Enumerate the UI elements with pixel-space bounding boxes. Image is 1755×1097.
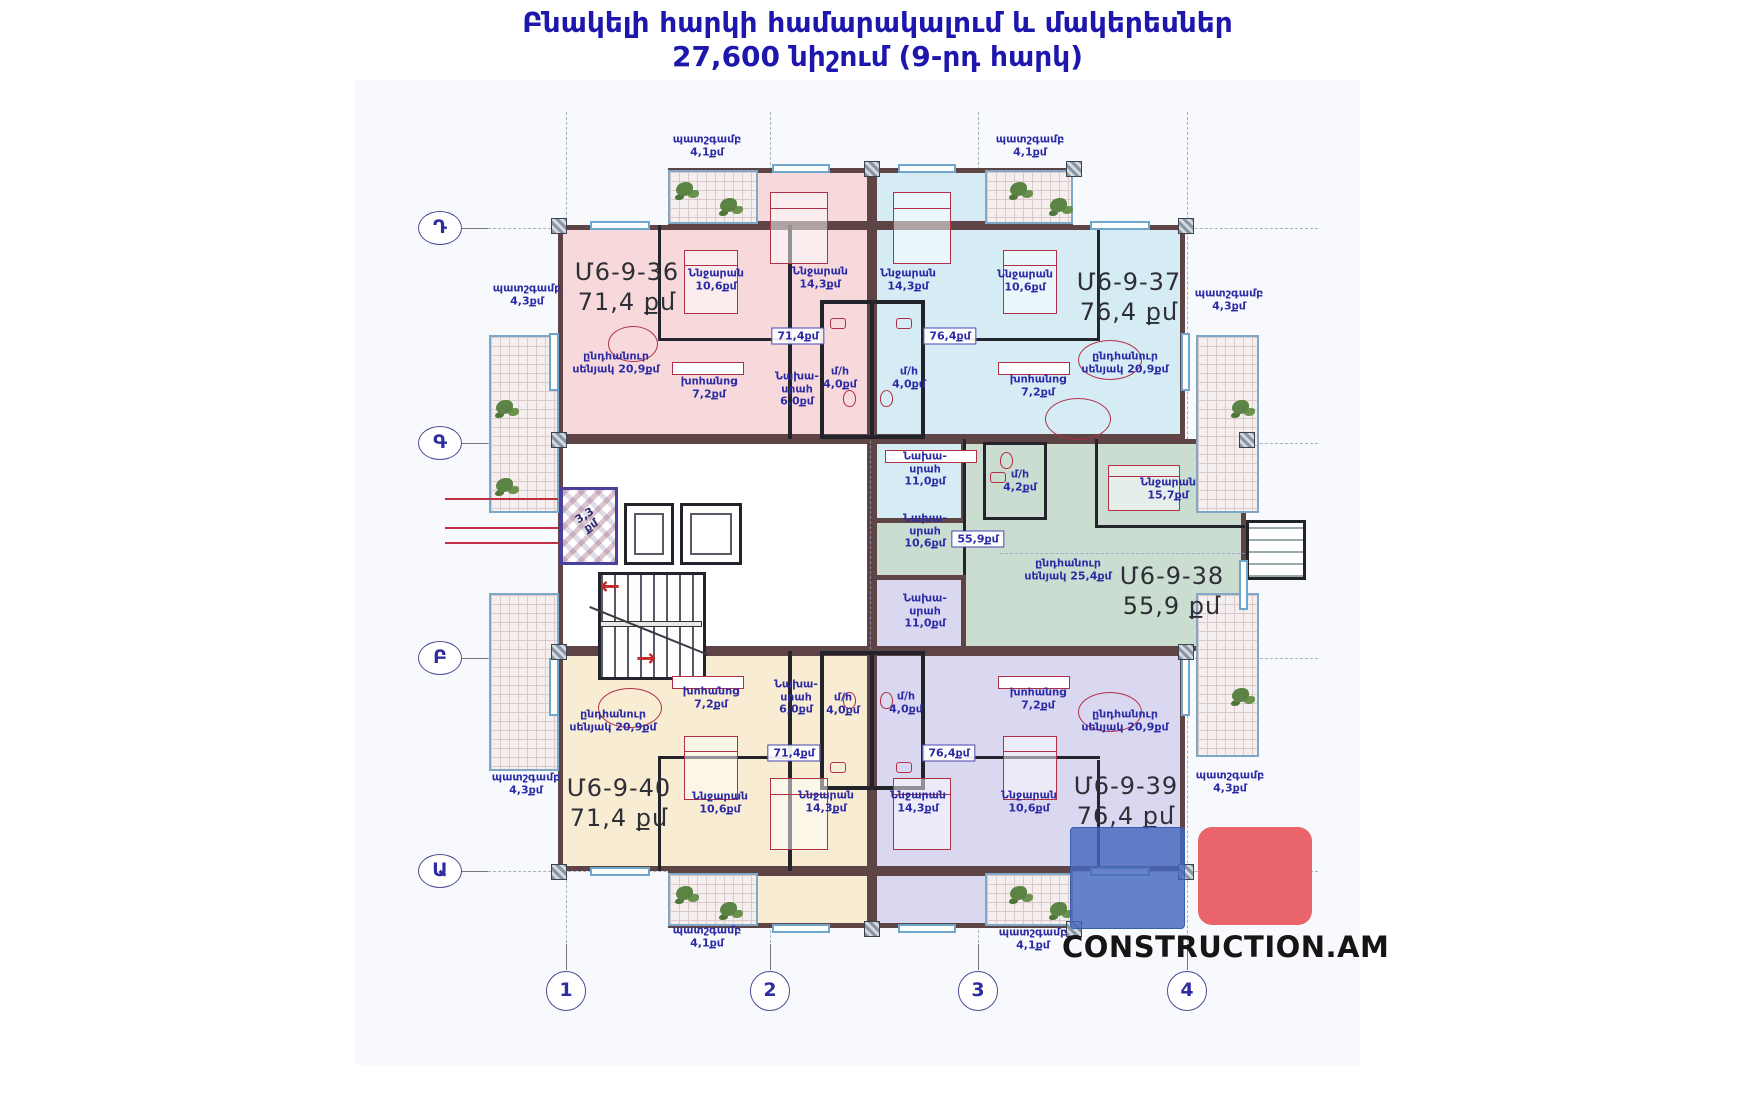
room-label: Ննջարան 10,6քմ [999, 790, 1059, 815]
elevator-1-cab [634, 513, 664, 555]
wall-corner-pad-7 [1178, 644, 1194, 660]
wall-corner-pad-5 [1239, 432, 1255, 448]
axis-row-letter: Դ [433, 216, 447, 238]
toilet-icon [1000, 452, 1013, 469]
balcony-area-1 [985, 170, 1073, 224]
room-name: մ/հ [831, 365, 849, 378]
axis-col-leader [770, 944, 771, 970]
apartment-id: Մ6-9-37 [1077, 267, 1181, 297]
axis-col-marker: 4 [1167, 971, 1207, 1011]
room-area: 11,0քմ [904, 474, 945, 487]
balcony-name: պատշգամբ [492, 771, 560, 784]
partition-wall-4 [965, 338, 1100, 341]
axis-row-marker: Ա [418, 854, 462, 888]
room-name: Ննջարան [1140, 476, 1196, 489]
apartment-area-badge-value: 55,9քմ [957, 533, 998, 546]
window-5 [1090, 221, 1150, 230]
room-name: Ննջարան [692, 790, 748, 803]
wall-corner-pad-0 [551, 218, 567, 234]
room-area: 4,0քմ [826, 703, 860, 716]
room-label: խոհանոց 7,2քմ [1007, 374, 1069, 399]
apartment-area-badge: 71,4քմ [771, 328, 824, 345]
room-area: 10,6քմ [1008, 801, 1049, 814]
elevator-1 [624, 503, 674, 565]
apartment-area-badge-value: 76,4քմ [928, 747, 969, 760]
wall-corner-pad-2 [1066, 161, 1082, 177]
axis-row-marker: Գ [418, 426, 462, 460]
axis-row-leader [462, 228, 488, 229]
room-area: 14,3քմ [887, 279, 928, 292]
apartment-id: Մ6-9-38 [1120, 561, 1224, 591]
title-line1: Բնակելի հարկի համարակալում և մակերեսներ [0, 6, 1755, 40]
room-area: 15,7քմ [1147, 488, 1188, 501]
window-1 [898, 164, 956, 173]
axis-col-number: 3 [971, 979, 984, 1001]
balcony-label: պատշգամբ 4,3քմ [488, 772, 564, 797]
balcony-name: պատշգամբ [673, 133, 741, 146]
room-name: խոհանոց [683, 685, 740, 698]
balcony-area: 4,3քմ [510, 294, 544, 307]
room-label: Նախա-սրահ 10,6քմ [899, 512, 951, 550]
balcony-label: պատշգամբ 4,1քմ [992, 134, 1068, 159]
partition-wall-7 [1095, 525, 1245, 528]
axis-col-marker: 2 [750, 971, 790, 1011]
wall-corner-pad-8 [864, 921, 880, 937]
room-name: խոհանոց [1010, 373, 1067, 386]
room-area: 6,0քմ [780, 394, 814, 407]
room-name: Ննջարան [792, 265, 848, 278]
apartment-area-badge: 76,4քմ [923, 328, 976, 345]
room-name: Ննջարան [880, 267, 936, 280]
sink-icon [896, 318, 912, 329]
stair-direction-arrow-icon: ← [600, 576, 620, 596]
apartment-id-label: Մ6-9-3855,9 քմ [1120, 561, 1224, 621]
room-label: Նախա-սրահ 6,0քմ [770, 678, 822, 716]
room-area: 20,9քմ [1127, 362, 1168, 375]
balcony-label: պատշգամբ 4,3քմ [1191, 288, 1267, 313]
room-name: Նախա-սրահ [903, 511, 947, 537]
balcony-name: պատշգամբ [673, 924, 741, 937]
dining-table-icon [1045, 398, 1111, 440]
service-box [1246, 520, 1306, 580]
sink-icon [896, 762, 912, 773]
apartment-id-label: Մ6-9-3776,4 քմ [1077, 267, 1181, 327]
apartment-area-badge-value: 76,4քմ [929, 330, 970, 343]
balcony-name: պատշգամբ [996, 133, 1064, 146]
room-area: 7,2քմ [1021, 698, 1055, 711]
apartment-area-badge: 71,4քմ [767, 745, 820, 762]
bathroom-divider-top [870, 300, 874, 439]
toilet-icon [843, 390, 856, 407]
bed-pillow-line [1004, 737, 1056, 752]
room-label: մ/հ 4,0քմ [887, 366, 931, 391]
bed-pillow-line [894, 193, 950, 209]
title-line2: 27,600 նիշում (9-րդ հարկ) [0, 40, 1755, 74]
wall-corner-pad-4 [551, 432, 567, 448]
room-label: Նախա-սրահ 11,0քմ [899, 450, 951, 488]
wall-corner-pad-6 [551, 644, 567, 660]
room-area: 7,2քմ [692, 387, 726, 400]
balcony-area: 4,1քմ [1013, 145, 1047, 158]
room-name: մ/հ [897, 690, 915, 703]
room-area: 10,6քմ [904, 536, 945, 549]
bed-icon [770, 192, 828, 264]
room-area: 10,6քմ [695, 279, 736, 292]
room-area: 14,3քմ [897, 801, 938, 814]
room-name: մ/հ [900, 365, 918, 378]
bathroom-divider-bottom [870, 651, 874, 790]
room-label: խոհանոց 7,2քմ [680, 686, 742, 711]
room-name: Ննջարան [997, 268, 1053, 281]
room-label: Նախա-սրահ 11,0քմ [899, 592, 951, 630]
balcony-area: 4,3քմ [1212, 299, 1246, 312]
room-label: Ննջարան 14,3քմ [790, 266, 850, 291]
axis-col-number: 2 [763, 979, 776, 1001]
room-name: Ննջարան [1001, 789, 1057, 802]
balcony-area-6 [1196, 335, 1259, 513]
room-label: մ/հ 4,0քմ [884, 691, 928, 716]
room-area: 25,4քմ [1070, 569, 1111, 582]
window-0 [772, 164, 830, 173]
apartment-area-badge: 76,4քմ [922, 745, 975, 762]
bed-pillow-line [685, 251, 737, 266]
bed-pillow-line [771, 193, 827, 209]
balcony-area: 4,1քմ [690, 936, 724, 949]
axis-row-marker: Դ [418, 211, 462, 245]
room-label: մ/հ 4,2քմ [998, 469, 1042, 494]
apartment-id: Մ6-9-39 [1074, 771, 1178, 801]
apartment-id-label: Մ6-9-3976,4 քմ [1074, 771, 1178, 831]
room-area: 4,0քմ [889, 702, 923, 715]
room-name: Ննջարան [890, 789, 946, 802]
apartment-total-area: 55,9 քմ [1120, 591, 1224, 621]
room-label: խոհանոց 7,2քմ [1007, 687, 1069, 712]
construction-am-logo-red-rect [1198, 827, 1312, 925]
apartment-total-area: 71,4 քմ [575, 287, 679, 317]
partition-wall-1 [658, 338, 790, 341]
axis-col-marker: 1 [546, 971, 586, 1011]
staircase-rail [600, 621, 702, 627]
window-6 [590, 867, 650, 876]
balcony-label: պատշգամբ 4,1քմ [669, 925, 745, 950]
balcony-label: պատշգամբ 4,3քմ [489, 283, 565, 308]
apartment-total-area: 71,4 քմ [567, 803, 671, 833]
room-area: 10,6քմ [699, 802, 740, 815]
bed-icon [893, 192, 951, 264]
toilet-icon [880, 390, 893, 407]
room-name: Նախա-սրահ [903, 591, 947, 617]
room-area: 20,9քմ [1127, 720, 1168, 733]
room-name: խոհանոց [1010, 686, 1067, 699]
stair-direction-arrow-icon: → [636, 648, 656, 668]
balcony-area: 4,1քմ [690, 145, 724, 158]
elevator-2 [680, 503, 742, 565]
window-12 [1239, 560, 1248, 610]
apartment-area-badge-value: 71,4քմ [773, 747, 814, 760]
room-area: 4,0քմ [823, 377, 857, 390]
sink-icon [830, 762, 846, 773]
room-label: ընդհանուր սենյակ 25,4քմ [1019, 558, 1117, 583]
room-label: Ննջարան 10,6քմ [686, 268, 746, 293]
riser-pipe-0 [445, 498, 558, 500]
balcony-name: պատշգամբ [1196, 769, 1264, 782]
balcony-area: 4,1քմ [1016, 938, 1050, 951]
apartment-area-badge: 55,9քմ [951, 531, 1004, 548]
room-area: 11,0քմ [904, 616, 945, 629]
balcony-name: պատշգամբ [999, 926, 1067, 939]
sink-icon [830, 318, 846, 329]
room-name: Ննջարան [688, 267, 744, 280]
room-label: մ/հ 4,0քմ [818, 366, 862, 391]
window-9 [549, 658, 559, 716]
center-axis-horizontal [1000, 553, 1250, 554]
watermark-text: CONSTRUCTION.AM [1062, 930, 1332, 964]
balcony-label: պատշգամբ 4,1քմ [995, 927, 1071, 952]
axis-col-number: 4 [1180, 979, 1193, 1001]
room-label: Ննջարան 10,6քմ [690, 791, 750, 816]
window-3 [898, 924, 956, 933]
wall-corner-pad-3 [1178, 218, 1194, 234]
axis-col-leader [978, 944, 979, 970]
window-4 [590, 221, 650, 230]
axis-row-leader [462, 658, 488, 659]
apartment-total-area: 76,4 քմ [1077, 297, 1181, 327]
kitchen-counter-icon [672, 362, 744, 375]
room-area: 7,2քմ [694, 697, 728, 710]
room-area: 20,9քմ [618, 362, 659, 375]
room-label: խոհանոց 7,2քմ [678, 376, 740, 401]
apartment-id-label: Մ6-9-4071,4 քմ [567, 773, 671, 833]
riser-pipe-1 [445, 527, 558, 529]
axis-col-leader [566, 944, 567, 970]
partition-wall-6 [1095, 439, 1098, 527]
room-name: Նախա-սրահ [774, 677, 818, 703]
riser-pipe-2 [445, 542, 558, 544]
window-8 [549, 333, 559, 391]
axis-row-letter: Գ [433, 431, 447, 453]
axis-col-marker: 3 [958, 971, 998, 1011]
axis-row-leader [462, 871, 488, 872]
apartment-area-badge-value: 71,4քմ [777, 330, 818, 343]
room-area: 14,3քմ [805, 801, 846, 814]
room-area: 7,2քմ [1021, 385, 1055, 398]
wall-corner-pad-10 [551, 864, 567, 880]
window-10 [1181, 333, 1190, 391]
room-name: Ննջարան [798, 789, 854, 802]
room-area: 4,2քմ [1003, 480, 1037, 493]
room-name: մ/հ [834, 691, 852, 704]
elevator-2-cab [690, 513, 732, 555]
bed-pillow-line [685, 737, 737, 752]
room-name: մ/հ [1011, 468, 1029, 481]
axis-row-leader [462, 443, 488, 444]
wall-corner-pad-1 [864, 161, 880, 177]
balcony-name: պատշգամբ [1195, 287, 1263, 300]
window-2 [772, 924, 830, 933]
room-area: 20,9քմ [615, 720, 656, 733]
balcony-name: պատշգամբ [493, 282, 561, 295]
room-area: 6,0քմ [779, 702, 813, 715]
room-label: Ննջարան 14,3քմ [878, 268, 938, 293]
room-label: ընդհանուր սենյակ 20,9քմ [1076, 709, 1174, 734]
room-label: ընդհանուր սենյակ 20,9քմ [564, 709, 662, 734]
room-label: Ննջարան 15,7քմ [1138, 477, 1198, 502]
balcony-label: պատշգամբ 4,1քմ [669, 134, 745, 159]
apartment-id-label: Մ6-9-3671,4 քմ [575, 257, 679, 317]
room-name: խոհանոց [681, 375, 738, 388]
balcony-label: պատշգամբ 4,3քմ [1192, 770, 1268, 795]
room-label: Ննջարան 10,6քմ [995, 269, 1055, 294]
balcony-area: 4,3քմ [509, 783, 543, 796]
room-label: ընդհանուր սենյակ 20,9քմ [1076, 351, 1174, 376]
floor-plan: ←→Ննջարան 10,6քմՆնջարան 14,3քմընդհանուր … [0, 0, 1755, 1097]
room-label: Ննջարան 14,3քմ [888, 790, 948, 815]
apartment-id: Մ6-9-40 [567, 773, 671, 803]
bed-pillow-line [1004, 251, 1056, 266]
balcony-area: 4,3քմ [1213, 781, 1247, 794]
room-area: 4,0քմ [892, 377, 926, 390]
balcony-area-0 [668, 170, 758, 224]
balcony-area-3 [985, 873, 1073, 926]
room-name: Նախա-սրահ [775, 369, 819, 395]
room-label: մ/հ 4,0քմ [821, 692, 865, 717]
room-area: 14,3քմ [799, 277, 840, 290]
room-label: Նախա-սրահ 6,0քմ [771, 370, 823, 408]
page-title: Բնակելի հարկի համարակալում և մակերեսներ … [0, 6, 1755, 74]
apartment-id: Մ6-9-36 [575, 257, 679, 287]
room-label: Ննջարան 14,3քմ [796, 790, 856, 815]
axis-row-marker: Բ [418, 641, 462, 675]
room-label: ընդհանուր սենյակ 20,9քմ [567, 351, 665, 376]
axis-row-letter: Ա [432, 859, 447, 881]
room-area: 10,6քմ [1004, 280, 1045, 293]
axis-row-letter: Բ [433, 646, 447, 668]
construction-am-logo-blue-rect [1070, 827, 1185, 929]
room-name: Նախա-սրահ [903, 449, 947, 475]
axis-col-number: 1 [559, 979, 572, 1001]
window-11 [1181, 658, 1190, 716]
